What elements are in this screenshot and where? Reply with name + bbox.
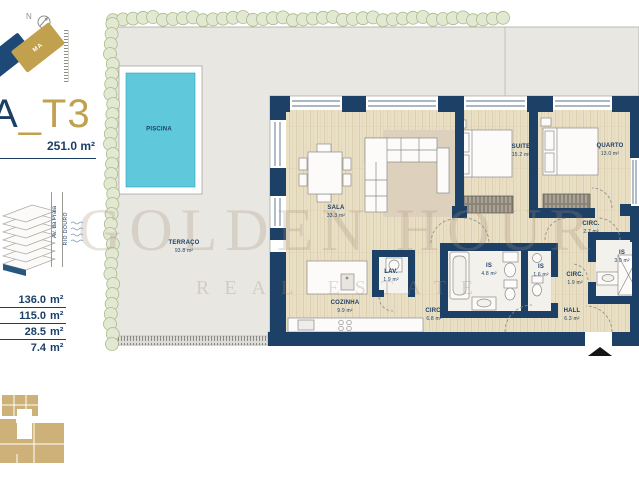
area-unit: m² (50, 326, 66, 338)
pool (119, 66, 202, 194)
area-unit: m² (50, 342, 66, 354)
floorplan-page: N MA A_T3 251.0 m² (0, 0, 639, 480)
vertical-caption (64, 30, 69, 82)
building-key-plan (0, 392, 72, 480)
area-list: 136.0 m² 115.0 m² 28.5 m² 7.4 m² (0, 292, 66, 355)
area-row: 7.4 m² (0, 340, 66, 355)
north-label: N (26, 12, 32, 21)
toilet (505, 263, 516, 277)
area-row: 136.0 m² (0, 292, 66, 308)
unit-title-prefix: A (0, 92, 19, 136)
area-unit: m² (50, 310, 66, 322)
area-value: 28.5 (0, 326, 46, 338)
dining-table (308, 152, 342, 194)
sidebar: N MA A_T3 251.0 m² (0, 0, 100, 480)
area-value: 7.4 (0, 342, 46, 354)
total-area: 251.0 m² (0, 139, 95, 153)
terrace-drain-strip (113, 336, 268, 345)
unit-title: A_T3 (0, 92, 91, 137)
tv-unit (437, 148, 449, 193)
quarto-wardrobe (543, 194, 590, 209)
site-block-gold: MA (11, 22, 65, 73)
area-value: 115.0 (0, 310, 46, 322)
floor-plan-drawing (100, 0, 639, 360)
street-label: Av. da Praia (52, 206, 58, 238)
area-value: 136.0 (0, 294, 46, 306)
area-row: 115.0 m² (0, 308, 66, 324)
kitchen-island (307, 261, 367, 294)
block-label: MA (32, 42, 45, 54)
entrance-arrow (588, 347, 612, 356)
river-waves-icon (69, 219, 85, 247)
floor-plan: GOLDEN HOUR REAL ESTATE PISCINATERRAÇO93… (100, 0, 639, 360)
area-row: 28.5 m² (0, 324, 66, 340)
bidet (505, 288, 515, 300)
divider (0, 158, 96, 159)
unit-title-suffix: _T3 (19, 92, 91, 136)
area-unit: m² (50, 294, 66, 306)
